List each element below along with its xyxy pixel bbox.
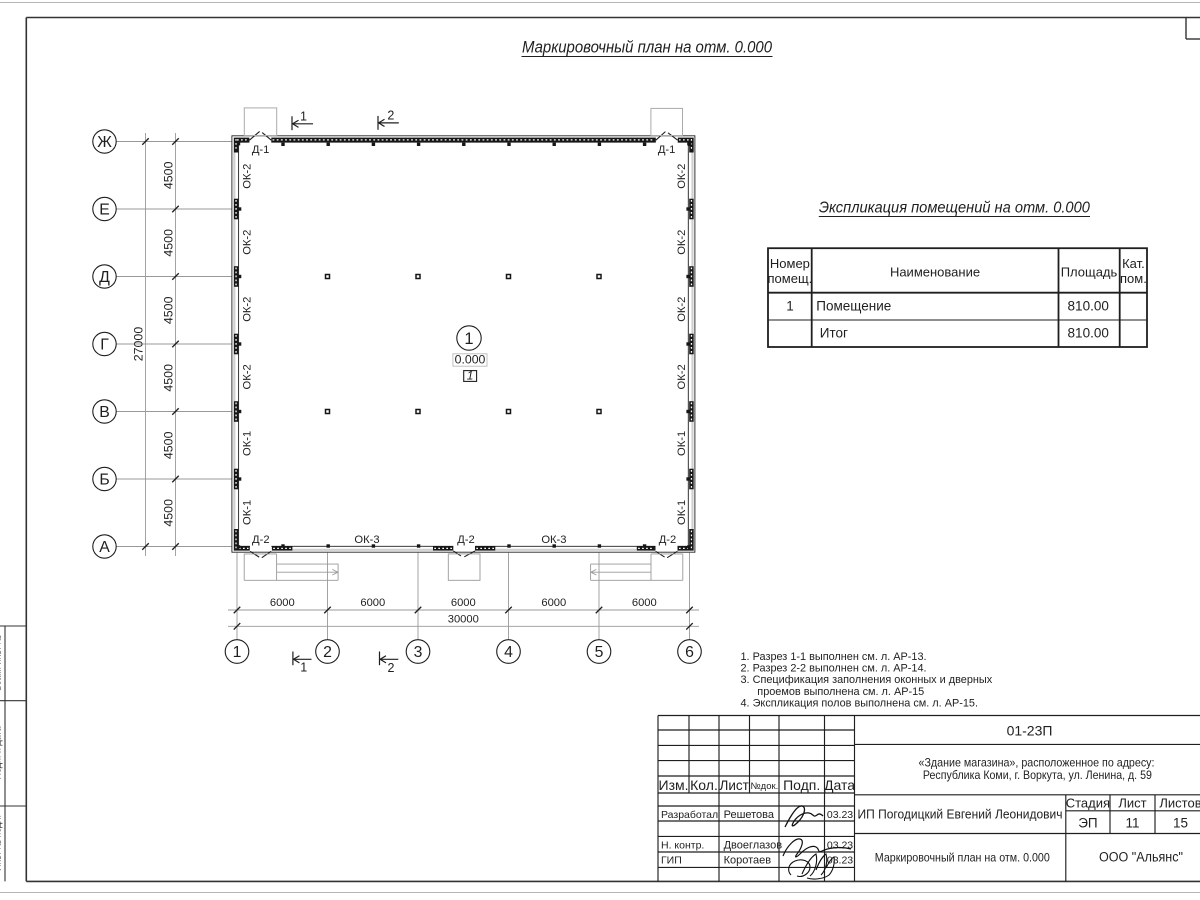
svg-text:Коротаев: Коротаев bbox=[724, 855, 772, 867]
svg-text:01-23П: 01-23П bbox=[1007, 723, 1053, 739]
svg-text:ОК-2: ОК-2 bbox=[241, 164, 253, 189]
svg-text:4: 4 bbox=[504, 644, 513, 661]
svg-text:ЭП: ЭП bbox=[1078, 816, 1097, 831]
svg-text:ОК-1: ОК-1 bbox=[676, 500, 688, 525]
svg-text:4500: 4500 bbox=[162, 161, 176, 189]
svg-text:6000: 6000 bbox=[632, 597, 657, 609]
svg-text:ОК-2: ОК-2 bbox=[676, 164, 688, 189]
svg-text:6000: 6000 bbox=[360, 597, 385, 609]
svg-text:ОК-2: ОК-2 bbox=[676, 364, 688, 389]
svg-text:Лист: Лист bbox=[720, 778, 749, 793]
svg-text:Дата: Дата bbox=[824, 777, 855, 793]
svg-text:27000: 27000 bbox=[132, 327, 146, 362]
svg-text:03.23: 03.23 bbox=[827, 809, 853, 821]
svg-text:Решетова: Решетова bbox=[724, 809, 775, 821]
svg-text:Изм.: Изм. bbox=[659, 777, 689, 793]
svg-text:Г: Г bbox=[100, 337, 109, 354]
svg-text:Экспликация помещений на отм.: Экспликация помещений на отм. 0.000 bbox=[819, 200, 1090, 217]
svg-text:ООО "Альянс": ООО "Альянс" bbox=[1099, 850, 1183, 865]
svg-text:03.23: 03.23 bbox=[827, 840, 853, 852]
svg-text:6000: 6000 bbox=[270, 597, 295, 609]
svg-text:№док.: №док. bbox=[750, 781, 778, 792]
svg-text:Ж: Ж bbox=[97, 134, 112, 151]
svg-text:4500: 4500 bbox=[162, 296, 176, 324]
svg-text:Е: Е bbox=[99, 202, 110, 219]
svg-text:1: 1 bbox=[464, 330, 473, 348]
svg-text:Разработал: Разработал bbox=[661, 809, 718, 821]
svg-text:30000: 30000 bbox=[448, 614, 479, 626]
svg-text:Д-2: Д-2 bbox=[659, 534, 677, 546]
svg-text:4500: 4500 bbox=[162, 499, 176, 527]
svg-text:11: 11 bbox=[1125, 816, 1139, 831]
svg-text:ГИП: ГИП bbox=[661, 855, 682, 867]
svg-text:810.00: 810.00 bbox=[1068, 299, 1109, 314]
svg-text:15: 15 bbox=[1173, 816, 1188, 831]
svg-text:1: 1 bbox=[300, 661, 307, 675]
svg-text:Д-2: Д-2 bbox=[457, 534, 475, 546]
svg-text:Итог: Итог bbox=[820, 326, 848, 341]
svg-text:3: 3 bbox=[414, 644, 423, 661]
svg-text:Подп. и дата: Подп. и дата bbox=[0, 726, 3, 779]
svg-text:Республика Коми, г. Воркута, у: Республика Коми, г. Воркута, ул. Ленина,… bbox=[923, 768, 1152, 782]
svg-text:ОК-3: ОК-3 bbox=[541, 534, 566, 546]
svg-text:Н. контр.: Н. контр. bbox=[661, 840, 704, 852]
svg-text:810.00: 810.00 bbox=[1068, 326, 1109, 341]
svg-text:Двоеглазов: Двоеглазов bbox=[724, 840, 783, 852]
svg-text:3. Спецификация заполнения око: 3. Спецификация заполнения оконных и две… bbox=[741, 674, 993, 686]
svg-text:Подп.: Подп. bbox=[783, 777, 820, 793]
svg-text:1: 1 bbox=[786, 299, 794, 314]
svg-text:ОК-2: ОК-2 bbox=[241, 230, 253, 255]
svg-text:проемов выполнена см. л. АР-15: проемов выполнена см. л. АР-15 bbox=[757, 686, 924, 698]
svg-text:2. Разрез 2-2 выполнен см. л.: 2. Разрез 2-2 выполнен см. л. АР-14. bbox=[741, 663, 927, 675]
svg-text:Стадия: Стадия bbox=[1066, 796, 1110, 811]
svg-text:В: В bbox=[99, 404, 110, 421]
svg-text:1: 1 bbox=[300, 109, 307, 123]
svg-text:Д: Д bbox=[99, 269, 110, 286]
svg-text:4. Экспликация полов выполнена: 4. Экспликация полов выполнена см. л. АР… bbox=[741, 697, 979, 709]
svg-text:ИП Погодицкий Евгений Леонидов: ИП Погодицкий Евгений Леонидович bbox=[858, 808, 1063, 822]
svg-text:Номер: Номер bbox=[770, 256, 810, 271]
svg-text:Листов: Листов bbox=[1159, 796, 1200, 811]
svg-text:Взам. инв. №: Взам. инв. № bbox=[0, 635, 3, 691]
svg-text:помещ.: помещ. bbox=[768, 271, 813, 286]
svg-text:0.000: 0.000 bbox=[455, 352, 486, 366]
svg-text:Инв. № подл.: Инв. № подл. bbox=[0, 815, 3, 871]
svg-text:ОК-1: ОК-1 bbox=[241, 431, 253, 456]
svg-text:1: 1 bbox=[233, 644, 242, 661]
svg-text:Д-1: Д-1 bbox=[658, 144, 676, 156]
svg-text:ОК-2: ОК-2 bbox=[676, 297, 688, 322]
svg-text:ОК-3: ОК-3 bbox=[354, 534, 379, 546]
svg-text:пом.: пом. bbox=[1120, 271, 1147, 286]
svg-text:1: 1 bbox=[467, 369, 474, 383]
svg-text:2: 2 bbox=[387, 108, 394, 122]
svg-text:6: 6 bbox=[685, 644, 694, 661]
svg-text:ОК-1: ОК-1 bbox=[241, 500, 253, 525]
svg-text:Помещение: Помещение bbox=[816, 299, 891, 314]
svg-text:ОК-2: ОК-2 bbox=[241, 364, 253, 389]
svg-text:4500: 4500 bbox=[162, 229, 176, 257]
svg-text:Наименование: Наименование bbox=[890, 265, 980, 280]
svg-text:4500: 4500 bbox=[162, 431, 176, 459]
svg-text:Б: Б bbox=[99, 472, 109, 489]
svg-text:5: 5 bbox=[595, 644, 604, 661]
svg-text:Кол.: Кол. bbox=[690, 777, 718, 793]
svg-text:Площадь: Площадь bbox=[1061, 265, 1118, 280]
svg-text:Д-2: Д-2 bbox=[252, 534, 270, 546]
svg-text:6000: 6000 bbox=[451, 597, 476, 609]
svg-text:Маркировочный план на отм. 0.0: Маркировочный план на отм. 0.000 bbox=[522, 39, 772, 57]
svg-text:Д-1: Д-1 bbox=[252, 144, 270, 156]
svg-text:Лист: Лист bbox=[1118, 796, 1146, 811]
svg-text:ОК-2: ОК-2 bbox=[676, 230, 688, 255]
svg-text:2: 2 bbox=[323, 644, 332, 661]
svg-text:6000: 6000 bbox=[541, 597, 566, 609]
svg-text:1. Разрез 1-1 выполнен см. л.: 1. Разрез 1-1 выполнен см. л. АР-13. bbox=[741, 651, 927, 663]
svg-text:А: А bbox=[99, 539, 110, 556]
svg-text:Маркировочный план на отм. 0.0: Маркировочный план на отм. 0.000 bbox=[875, 851, 1050, 865]
svg-text:ОК-2: ОК-2 bbox=[241, 297, 253, 322]
svg-text:4500: 4500 bbox=[162, 364, 176, 392]
svg-text:Кат.: Кат. bbox=[1122, 256, 1145, 271]
svg-text:ОК-1: ОК-1 bbox=[676, 431, 688, 456]
svg-text:2: 2 bbox=[388, 661, 395, 675]
